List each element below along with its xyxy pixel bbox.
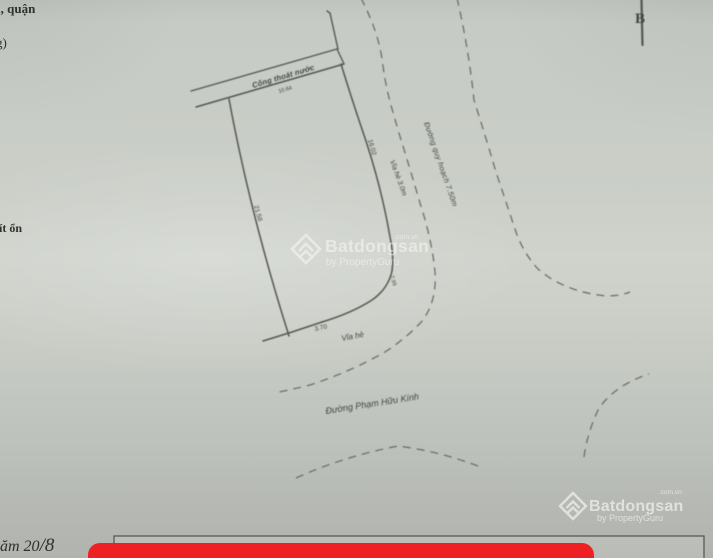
svg-text:B: B <box>635 11 645 27</box>
svg-text:i, quận: i, quận <box>0 1 36 16</box>
svg-text:g): g) <box>0 35 7 50</box>
svg-text:Đường Phạm Hữu Kính: Đường Phạm Hữu Kính <box>325 391 420 416</box>
svg-text:Vỉa hè 3.0m: Vỉa hè 3.0m <box>388 159 408 197</box>
svg-text:by PropertyGuru: by PropertyGuru <box>326 257 399 268</box>
svg-text:Cống thoát nước: Cống thoát nước <box>251 63 316 90</box>
svg-text:by PropertyGuru: by PropertyGuru <box>597 513 663 523</box>
svg-text:ít ổn: ít ổn <box>0 221 22 235</box>
svg-text:.com.vn: .com.vn <box>394 234 419 241</box>
svg-text:3.70: 3.70 <box>314 323 328 333</box>
svg-text:Vỉa hè: Vỉa hè <box>341 330 366 343</box>
svg-text:ăm 20/8: ăm 20/8 <box>0 535 55 556</box>
svg-text:.com.vn: .com.vn <box>659 489 682 496</box>
svg-text:10.64: 10.64 <box>278 85 293 95</box>
svg-text:Đường quy hoạch 7.50m: Đường quy hoạch 7.50m <box>422 121 459 208</box>
